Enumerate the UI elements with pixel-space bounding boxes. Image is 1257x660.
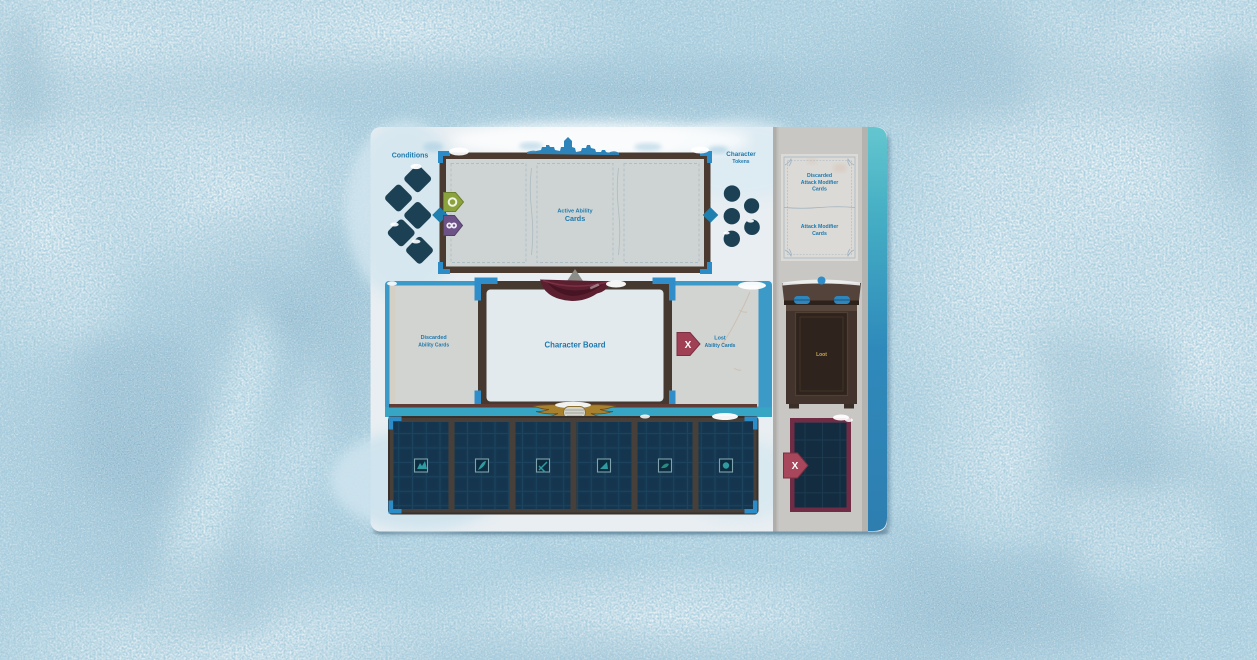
svg-text:Attack Modifier: Attack Modifier <box>801 180 838 186</box>
svg-text:Loot: Loot <box>816 352 827 358</box>
svg-text:X: X <box>685 340 692 351</box>
svg-text:Discarded: Discarded <box>421 335 447 341</box>
svg-text:Conditions: Conditions <box>392 153 429 160</box>
svg-text:Tokens: Tokens <box>732 159 749 165</box>
svg-text:X: X <box>792 461 799 472</box>
svg-text:Attack Modifier: Attack Modifier <box>801 224 838 230</box>
svg-text:Cards: Cards <box>812 187 827 193</box>
svg-text:Ability Cards: Ability Cards <box>705 343 736 349</box>
svg-text:Character Board: Character Board <box>544 341 605 350</box>
svg-text:Cards: Cards <box>812 231 827 237</box>
svg-text:Lost: Lost <box>714 336 726 342</box>
svg-text:Cards: Cards <box>565 214 585 223</box>
svg-text:Ability Cards: Ability Cards <box>418 343 449 349</box>
svg-text:Character: Character <box>726 151 756 158</box>
svg-text:Discarded: Discarded <box>807 173 832 179</box>
